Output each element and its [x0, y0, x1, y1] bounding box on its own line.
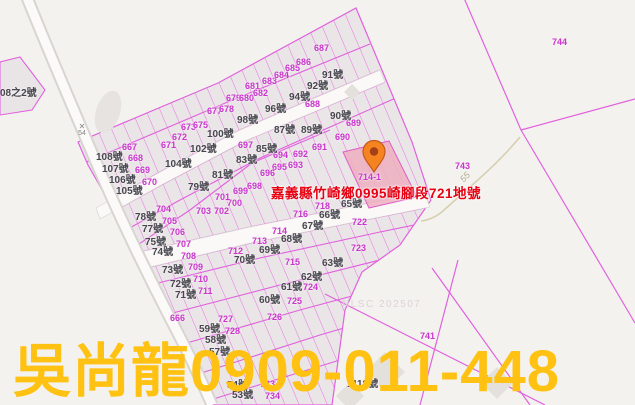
- cadastral-map[interactable]: 6676686696706716726736756776786796806816…: [0, 0, 635, 405]
- contact-overlay-text: 吳尚龍0909-011-448: [13, 324, 560, 405]
